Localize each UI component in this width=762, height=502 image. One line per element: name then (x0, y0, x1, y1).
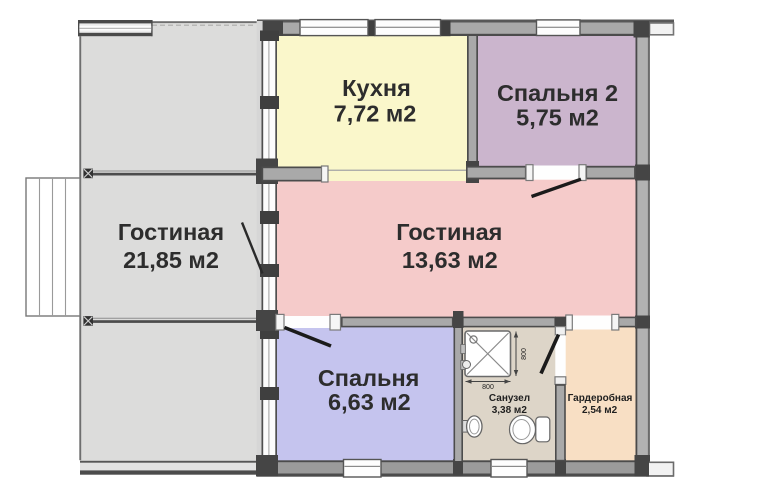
svg-text:Санузел: Санузел (489, 393, 530, 404)
svg-text:800: 800 (521, 348, 528, 360)
svg-text:Гардеробная: Гардеробная (568, 392, 633, 404)
svg-text:Спальня 2: Спальня 2 (497, 80, 618, 106)
svg-text:Кухня: Кухня (342, 75, 411, 101)
svg-text:800: 800 (482, 384, 494, 391)
svg-text:Гостиная: Гостиная (118, 219, 224, 245)
svg-text:Спальня: Спальня (318, 365, 420, 391)
svg-text:13,63 м2: 13,63 м2 (402, 247, 498, 273)
svg-text:7,72 м2: 7,72 м2 (334, 101, 417, 127)
svg-text:21,85 м2: 21,85 м2 (123, 247, 219, 273)
svg-text:2,54 м2: 2,54 м2 (582, 405, 618, 416)
svg-text:5,75 м2: 5,75 м2 (516, 105, 599, 131)
svg-text:3,38 м2: 3,38 м2 (492, 405, 528, 416)
svg-text:6,63 м2: 6,63 м2 (328, 389, 411, 415)
svg-text:Гостиная: Гостиная (396, 219, 502, 245)
